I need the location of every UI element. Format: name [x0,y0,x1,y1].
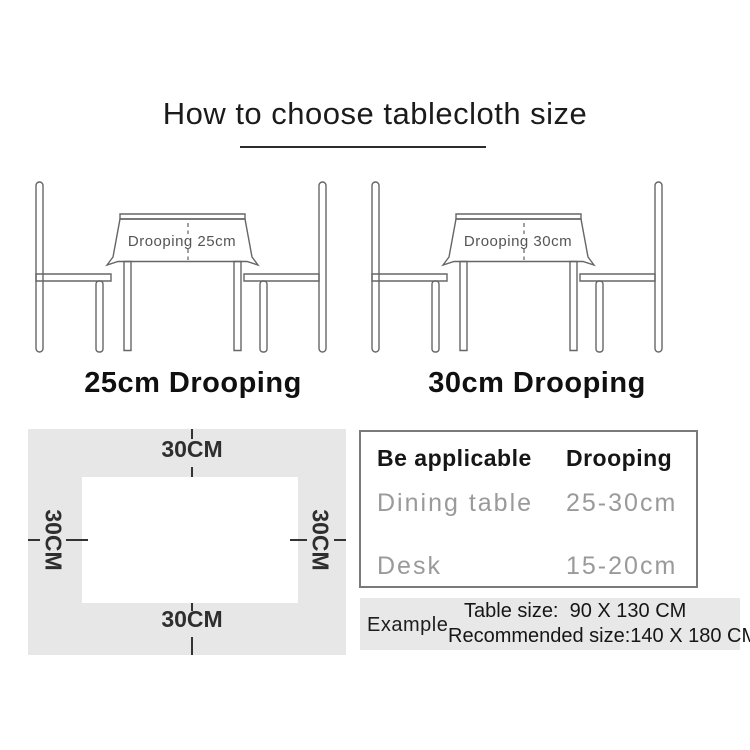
chair-left-icon [372,182,447,352]
drooping-spec-table: Be applicable Drooping Dining table 25-3… [359,430,698,588]
dash-bottom-outer [191,637,193,655]
example-label: Example [367,614,448,637]
tablecloth-size-infographic: How to choose tablecloth size [0,0,750,750]
example-table-size: Table size: 90 X 130 CM [448,599,740,624]
drooping-measure-label: Drooping 30cm [464,233,572,250]
spec-row-dining-table-value: 25-30cm [566,489,677,518]
page-title: How to choose tablecloth size [0,96,750,132]
overhang-top-label: 30CM [161,436,222,463]
chair-left-icon [36,182,111,352]
spec-row-desk-name: Desk [377,552,442,581]
example-recommended-size: Recommended size:140 X 180 CM [448,624,740,649]
chair-right-icon [244,182,326,352]
overhang-left-label: 30CM [40,509,67,570]
example-bar: Example Table size: 90 X 130 CM Recommen… [360,598,740,650]
caption-30cm-drooping: 30cm Drooping [428,367,646,400]
table-25cm-diagram-icon: Drooping 25cm [16,176,336,366]
caption-25cm-drooping: 25cm Drooping [84,367,302,400]
overhang-bottom-label: 30CM [161,606,222,633]
chair-right-icon [580,182,662,352]
dash-right-outer [334,539,346,541]
dash-left-outer [28,539,40,541]
spec-row-dining-table-name: Dining table [377,489,533,518]
spec-header-applicable: Be applicable [377,445,532,472]
dash-right-inner [290,539,307,541]
overhang-right-label: 30CM [307,509,334,570]
tablecloth-size-diagram: 30CM 30CM 30CM 30CM [28,429,346,655]
title-underline [240,146,486,148]
table-top-rectangle [82,477,298,603]
drooping-measure-label: Drooping 25cm [128,233,236,250]
spec-row-desk-value: 15-20cm [566,552,677,581]
table-30cm-diagram-icon: Drooping 30cm [352,176,672,366]
dash-top-inner [191,467,193,477]
spec-header-drooping: Drooping [566,445,672,472]
dash-left-inner [66,539,88,541]
example-lines: Table size: 90 X 130 CM Recommended size… [448,599,740,649]
